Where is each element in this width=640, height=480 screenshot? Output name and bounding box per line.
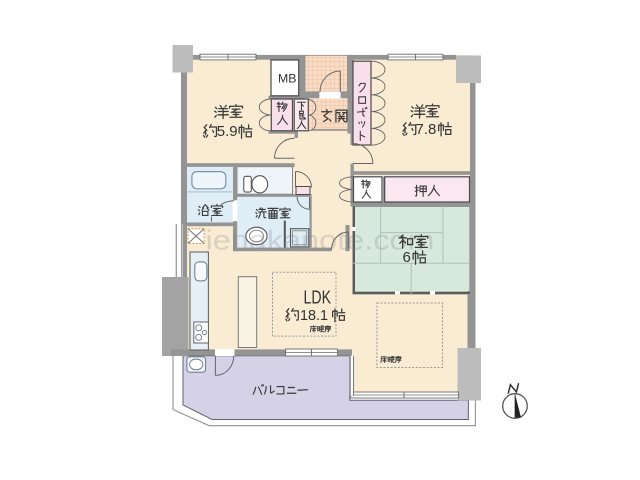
svg-text:7.8: 7.8 [416, 121, 437, 138]
svg-text:6: 6 [403, 249, 411, 266]
svg-text:MB: MB [278, 72, 296, 86]
svg-text:5.9: 5.9 [217, 123, 238, 140]
svg-text:LDK: LDK [304, 288, 332, 308]
svg-text:ienakanote.com: ienakanote.com [206, 225, 435, 256]
svg-text:18.1: 18.1 [300, 307, 328, 324]
